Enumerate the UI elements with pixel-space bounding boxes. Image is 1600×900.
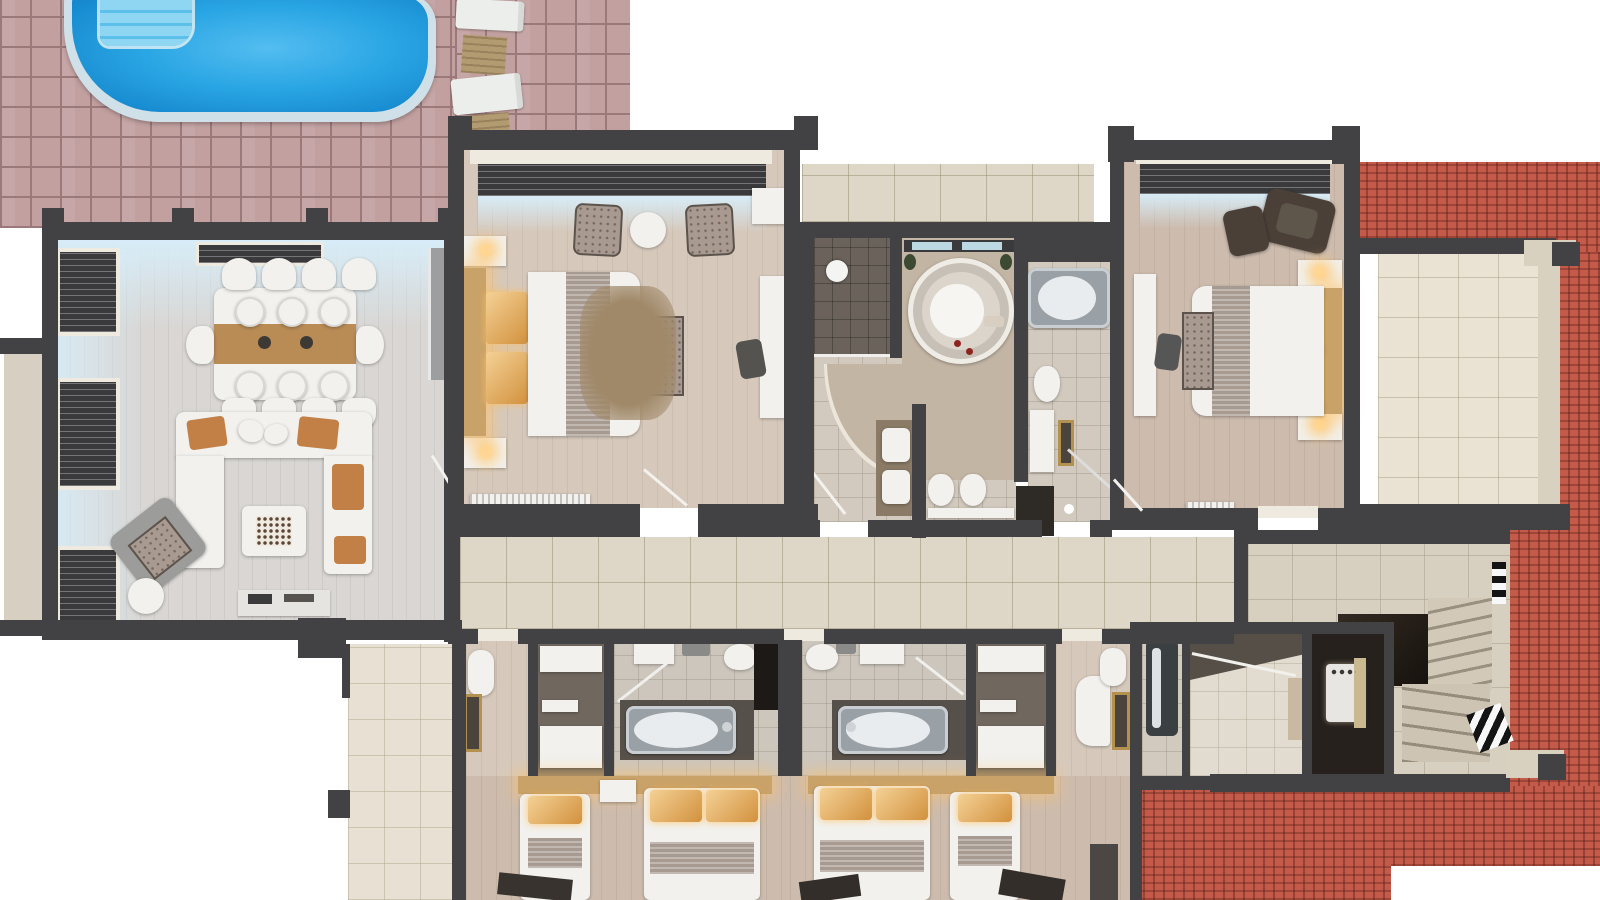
corridor-stub xyxy=(328,790,350,818)
closet-wall xyxy=(966,640,976,776)
bedroom1-wall-right xyxy=(784,150,800,520)
corridor-wall-left xyxy=(342,644,350,698)
stair-beam-cap xyxy=(1538,754,1566,780)
bedroom2-wall-bottom-left xyxy=(1110,508,1258,530)
suite-right-wall xyxy=(1130,634,1142,900)
bedroom2-wall-left xyxy=(1110,160,1124,510)
wall-pillar xyxy=(448,116,472,150)
door-sill xyxy=(478,629,518,641)
door-sill xyxy=(1062,629,1102,641)
bedroom1-wall-left xyxy=(448,150,464,520)
rooms-wall-top xyxy=(1130,622,1394,634)
bath-wall-bottom-b xyxy=(868,520,1042,537)
terrace-wall-bottom xyxy=(1354,504,1570,530)
bath-wall-bottom-c xyxy=(1090,520,1112,537)
closet-wall xyxy=(1046,640,1056,776)
wall-pillar xyxy=(1332,126,1360,164)
terrace-beam-cap xyxy=(1552,242,1580,266)
wall-stub xyxy=(298,618,346,658)
corridor-wall-bottom xyxy=(800,222,1112,238)
bay-cap xyxy=(0,620,58,636)
closet-wall xyxy=(528,640,538,776)
rooms-wall-bottom xyxy=(1130,776,1394,790)
wall-pillar xyxy=(794,116,818,150)
wall-pillar xyxy=(172,208,194,240)
hall-wall-bottom-c xyxy=(824,629,1062,644)
vanity-partition xyxy=(912,404,926,538)
bay-cap xyxy=(0,338,58,354)
floor-plan xyxy=(0,0,1600,900)
wall-pillar xyxy=(306,208,328,240)
bedroom1-wall-top xyxy=(448,130,818,150)
suite-divider-wall xyxy=(778,640,790,776)
bath-partition-right xyxy=(1014,238,1028,482)
walls xyxy=(0,0,1600,900)
kitchenette-wall xyxy=(1302,634,1312,780)
stair-wall-top xyxy=(1234,530,1510,544)
wall-pillar xyxy=(1108,126,1134,162)
utility-wall xyxy=(1384,634,1394,780)
tub-room-wall xyxy=(1182,634,1190,776)
stair-wall-left xyxy=(1234,530,1248,634)
suite-left-wall xyxy=(452,640,466,900)
living-wall-top xyxy=(42,222,462,240)
living-wall-bottom xyxy=(42,620,462,640)
door-sill xyxy=(1258,506,1318,518)
bath-wall-left xyxy=(800,238,814,520)
shower-partition xyxy=(890,238,902,358)
living-wall-left xyxy=(42,226,58,638)
closet-wall xyxy=(604,640,614,776)
bedroom2-wall-right xyxy=(1344,160,1360,512)
bedroom1-wall-bottom-left xyxy=(448,504,640,537)
door-swing-bedroom1 xyxy=(643,468,688,506)
suite-right-wall-left xyxy=(790,640,802,776)
hall-wall-bottom-b xyxy=(518,629,784,644)
bath-wall-bottom-a xyxy=(800,520,820,537)
bedroom2-wall-top xyxy=(1110,140,1360,160)
